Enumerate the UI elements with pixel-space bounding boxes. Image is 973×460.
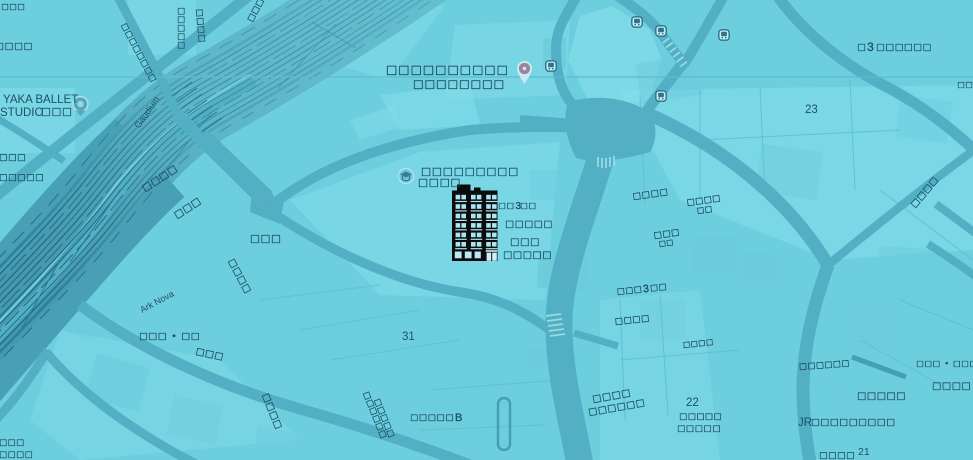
svg-text:□□□□□□□□□: □□□□□□□□□ (812, 415, 897, 429)
svg-text:□□□□: □□□□ (419, 175, 462, 190)
svg-text:□□□□: □□□□ (933, 379, 972, 393)
svg-text:□3: □3 (858, 41, 876, 54)
svg-text:□□□: □□□ (251, 231, 283, 246)
svg-text:STUDIO: STUDIO (0, 107, 44, 119)
svg-text:□□□□□: □□□□□ (506, 217, 554, 231)
svg-text:□□: □□ (958, 80, 973, 91)
svg-text:□□□□□: □□□□□ (504, 248, 553, 262)
svg-text:□□3: □□3 (499, 201, 523, 212)
svg-text:22: 22 (686, 397, 699, 409)
svg-text:□□: □□ (659, 236, 675, 249)
svg-text:□□□□□: □□□□□ (858, 389, 907, 403)
svg-text:□□□□: □□□□ (0, 449, 34, 460)
svg-text:JR: JR (798, 417, 812, 429)
svg-text:□□□□□: □□□□□ (678, 423, 722, 435)
svg-text:□□□□□: □□□□□ (680, 411, 723, 423)
svg-text:□□□: □□□ (0, 152, 27, 164)
svg-text:□□: □□ (697, 204, 714, 217)
svg-text:□□□□□□□□: □□□□□□□□ (414, 77, 506, 93)
svg-text:31: 31 (402, 331, 415, 343)
svg-text:□□□: □□□ (511, 235, 541, 249)
svg-text:□□□□□□: □□□□□□ (877, 41, 933, 54)
svg-text:□□□□: □□□□ (820, 450, 856, 460)
svg-text:21: 21 (858, 446, 870, 458)
svg-text:□□□: □□□ (0, 437, 26, 449)
svg-text:□□□: □□□ (42, 104, 74, 119)
svg-text:□□□□: □□□□ (0, 39, 34, 53)
svg-text:□□□・□□□□: □□□・□□□□ (917, 359, 973, 370)
svg-text:□□□: □□□ (2, 2, 26, 13)
svg-text:□□: □□ (521, 201, 537, 212)
svg-text:23: 23 (805, 104, 818, 116)
svg-text:□□□・□□: □□□・□□ (140, 329, 201, 343)
svg-text:□□□□□B: □□□□□B (411, 412, 465, 424)
svg-text:□□□□□: □□□□□ (175, 8, 187, 51)
svg-text:□□□□□: □□□□□ (0, 172, 45, 184)
